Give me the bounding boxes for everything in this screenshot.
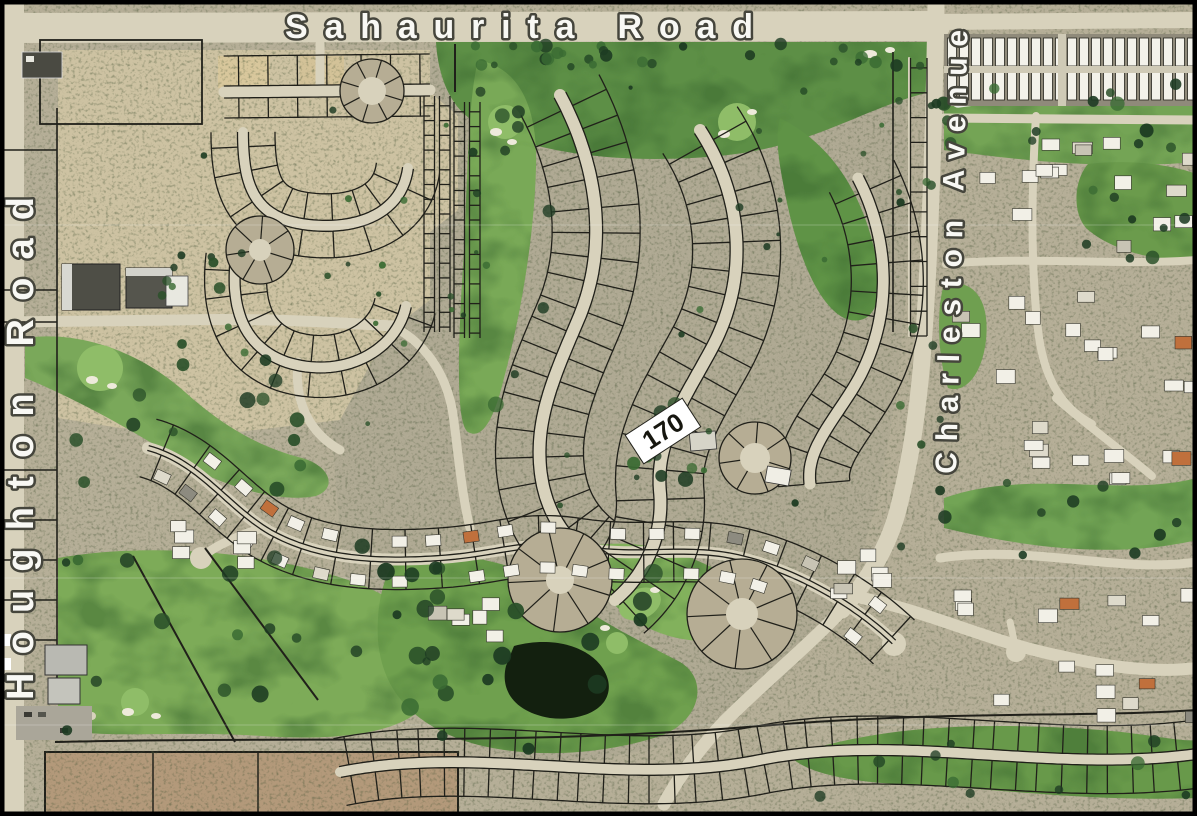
tree <box>133 388 146 401</box>
house <box>447 609 464 620</box>
tree <box>1032 127 1041 136</box>
tree <box>225 324 232 331</box>
house <box>1038 609 1057 623</box>
tree <box>678 472 693 487</box>
tree <box>822 257 828 263</box>
house <box>1066 324 1081 337</box>
house <box>487 630 504 642</box>
tree <box>240 392 256 408</box>
tree <box>288 434 300 446</box>
house <box>1112 473 1130 484</box>
tree <box>512 105 525 118</box>
tree <box>468 148 477 157</box>
tree <box>1128 215 1136 223</box>
tree <box>543 205 556 218</box>
tree <box>269 482 284 497</box>
tree <box>1170 79 1181 90</box>
tree <box>177 358 190 371</box>
tree <box>91 676 102 687</box>
tree <box>120 553 135 568</box>
tree <box>557 502 563 508</box>
house <box>1097 709 1115 722</box>
house <box>1009 296 1025 309</box>
house <box>1117 240 1131 252</box>
tree <box>701 467 707 473</box>
tree <box>1140 124 1154 138</box>
tree <box>935 486 945 496</box>
tree <box>736 203 744 211</box>
tree <box>706 428 712 434</box>
tree <box>433 674 448 689</box>
lot-line <box>902 756 903 785</box>
tree <box>1037 508 1046 517</box>
tree <box>745 50 755 60</box>
tree <box>401 340 408 347</box>
tree <box>508 603 525 620</box>
lot-line <box>857 716 858 745</box>
tree <box>687 463 698 474</box>
house <box>1073 455 1089 465</box>
tree <box>647 59 656 68</box>
house <box>954 590 971 602</box>
tree <box>355 539 370 554</box>
house <box>1096 685 1115 698</box>
tree <box>208 257 218 267</box>
tree <box>222 566 238 582</box>
aerial-parcel-map: Sahaurita Road Houghton Road Charleston … <box>0 0 1197 816</box>
tree <box>966 789 975 798</box>
tree <box>1179 213 1190 224</box>
tree <box>351 646 363 658</box>
tree <box>62 558 70 566</box>
tree <box>791 499 798 506</box>
tree <box>1154 529 1166 541</box>
tree <box>73 555 84 566</box>
house <box>994 694 1009 706</box>
tree <box>373 321 378 326</box>
tree <box>890 59 902 71</box>
house <box>1167 185 1187 196</box>
tree <box>177 251 185 259</box>
tree <box>267 550 282 565</box>
tree <box>393 610 402 619</box>
tree <box>634 613 648 627</box>
tree <box>62 725 72 735</box>
house <box>171 521 186 532</box>
lot-line <box>1087 765 1088 793</box>
tree <box>158 291 167 300</box>
house <box>1139 679 1155 689</box>
tree <box>541 53 554 66</box>
tree <box>637 57 648 68</box>
tree <box>365 421 370 426</box>
house <box>1123 698 1138 710</box>
tree <box>500 146 510 156</box>
house <box>1165 380 1184 391</box>
house <box>1042 139 1060 150</box>
tree <box>523 743 535 755</box>
tree <box>634 475 640 481</box>
house <box>610 528 625 540</box>
tree <box>476 87 486 97</box>
tree <box>1097 481 1108 492</box>
tree <box>417 600 435 618</box>
house <box>1036 165 1052 177</box>
tree <box>379 262 386 269</box>
tree <box>449 307 454 312</box>
tree <box>800 87 807 94</box>
house <box>1060 598 1079 609</box>
tree <box>238 249 246 257</box>
house <box>1026 312 1041 325</box>
house <box>1104 450 1124 463</box>
tree <box>916 62 924 70</box>
lot-line <box>1131 725 1132 754</box>
tree <box>1055 785 1064 794</box>
tree <box>896 189 902 195</box>
house <box>350 573 366 585</box>
house <box>1032 421 1048 433</box>
tree <box>482 674 493 685</box>
tree <box>815 791 826 802</box>
tree <box>493 647 511 665</box>
house <box>1115 176 1132 190</box>
tree <box>1148 735 1160 747</box>
cul-de-sac-bulb <box>740 443 770 473</box>
tree <box>269 374 283 388</box>
parking-lot <box>16 706 92 740</box>
tree <box>927 181 936 190</box>
tree <box>214 282 226 294</box>
tree <box>897 543 905 551</box>
house <box>1012 209 1031 221</box>
tree <box>241 349 249 357</box>
lot-line <box>1133 765 1134 794</box>
house <box>685 528 700 539</box>
cul-de-sac-bulb <box>358 77 386 105</box>
tree <box>879 123 884 128</box>
house <box>425 534 441 546</box>
tree <box>644 564 663 583</box>
tree <box>599 46 608 55</box>
house <box>860 549 876 562</box>
tree <box>170 264 177 271</box>
tree <box>1110 193 1119 202</box>
tree <box>474 250 478 254</box>
lot-line <box>903 717 904 745</box>
tree <box>1110 97 1124 111</box>
tree <box>483 262 490 269</box>
tree <box>776 232 780 236</box>
tree <box>476 59 488 71</box>
tree <box>437 730 448 741</box>
house <box>838 561 856 574</box>
house <box>834 584 853 594</box>
tree <box>1082 240 1091 249</box>
house <box>1024 440 1043 450</box>
house <box>503 564 520 577</box>
tree <box>429 562 442 575</box>
tree <box>511 370 519 378</box>
tree <box>177 339 187 349</box>
tree <box>1134 139 1143 148</box>
house <box>649 528 664 539</box>
tree <box>588 675 607 694</box>
house <box>1142 326 1160 338</box>
tree <box>430 589 445 604</box>
tree <box>324 273 331 280</box>
tree <box>763 243 770 250</box>
tree <box>512 121 524 133</box>
mobile-home-park <box>944 34 1197 106</box>
tree <box>1146 251 1160 265</box>
tree <box>201 152 208 159</box>
tree <box>461 312 466 317</box>
tree <box>473 189 481 197</box>
lot-line <box>673 735 674 764</box>
house <box>1172 452 1191 466</box>
house <box>1059 661 1075 672</box>
house <box>497 524 514 537</box>
tree <box>538 302 549 313</box>
tree <box>346 262 351 267</box>
lot-line <box>674 775 675 804</box>
lot-line <box>858 756 859 785</box>
tree <box>947 740 955 748</box>
tree <box>775 38 787 50</box>
tree <box>345 195 352 202</box>
tree <box>930 750 940 760</box>
house <box>1032 457 1050 468</box>
tree <box>830 58 838 66</box>
tree <box>232 629 243 640</box>
tree <box>264 623 275 634</box>
tree <box>855 59 862 66</box>
tree <box>1172 518 1181 527</box>
tree <box>917 440 925 448</box>
tree <box>869 56 881 68</box>
tree <box>839 44 848 53</box>
tree <box>425 646 440 661</box>
tree <box>78 476 90 488</box>
tree <box>1126 254 1135 263</box>
house <box>482 598 499 611</box>
house <box>473 610 487 624</box>
tree <box>488 397 504 413</box>
house <box>1142 616 1159 626</box>
tree <box>1166 143 1176 153</box>
house <box>958 603 974 615</box>
lot-line <box>1087 726 1088 755</box>
tree <box>861 151 867 157</box>
house <box>996 370 1015 384</box>
tree <box>294 460 306 472</box>
tree <box>401 698 419 716</box>
tree <box>376 291 381 296</box>
house <box>1096 665 1114 676</box>
tree <box>655 470 667 482</box>
tree <box>896 198 904 206</box>
tree <box>938 510 951 523</box>
house <box>238 557 254 569</box>
house <box>1022 171 1038 183</box>
tree <box>1003 479 1011 487</box>
tree <box>329 107 336 114</box>
house <box>237 532 256 544</box>
lot-line <box>628 775 629 803</box>
tree <box>154 613 170 629</box>
tree <box>252 686 269 703</box>
house <box>1175 336 1192 349</box>
house <box>1098 348 1113 361</box>
house <box>1103 137 1120 149</box>
tree <box>290 412 305 427</box>
house <box>1078 292 1095 303</box>
tree <box>405 567 420 582</box>
house <box>1075 145 1091 156</box>
tree <box>873 756 885 768</box>
clubhouse-building <box>45 645 87 675</box>
tree <box>1129 547 1140 558</box>
tree <box>589 61 597 69</box>
house <box>572 564 588 577</box>
tree <box>895 97 903 105</box>
house <box>540 562 555 573</box>
cul-de-sac-bulb <box>726 598 758 630</box>
tree <box>400 197 407 204</box>
tree <box>218 684 231 697</box>
tree <box>491 62 498 69</box>
tree <box>444 123 449 128</box>
house <box>541 522 556 533</box>
tree <box>1019 551 1027 559</box>
tree <box>169 283 176 290</box>
house <box>173 547 190 559</box>
tree <box>69 433 83 447</box>
tree <box>169 427 178 436</box>
cul-de-sac-bulb <box>249 239 271 261</box>
tree <box>567 63 574 70</box>
tree <box>260 354 272 366</box>
house-top-left <box>22 52 62 78</box>
tree <box>1028 137 1036 145</box>
tree <box>756 128 762 134</box>
tree <box>1106 88 1115 97</box>
house <box>392 536 407 547</box>
tree <box>928 102 935 109</box>
tree <box>257 393 270 406</box>
tree <box>1088 96 1099 107</box>
tree <box>126 418 140 432</box>
tree <box>292 633 302 643</box>
house <box>463 530 479 543</box>
house <box>1108 595 1126 606</box>
tree <box>564 452 570 458</box>
tree <box>448 293 455 300</box>
house <box>873 573 892 587</box>
tree <box>678 331 684 337</box>
tree <box>581 633 599 651</box>
house <box>980 172 995 183</box>
tree <box>1131 756 1145 770</box>
tree <box>1182 791 1191 800</box>
tree <box>627 457 640 470</box>
tree <box>896 401 905 410</box>
tree <box>633 592 652 611</box>
tree <box>909 324 918 333</box>
tree <box>495 108 510 123</box>
tree <box>1067 495 1079 507</box>
house <box>469 570 485 583</box>
tree <box>629 86 633 90</box>
tree <box>777 198 782 203</box>
tree <box>697 306 704 313</box>
tree <box>989 83 999 93</box>
lot-line <box>629 736 630 765</box>
tree <box>1089 186 1098 195</box>
tree <box>947 777 959 789</box>
